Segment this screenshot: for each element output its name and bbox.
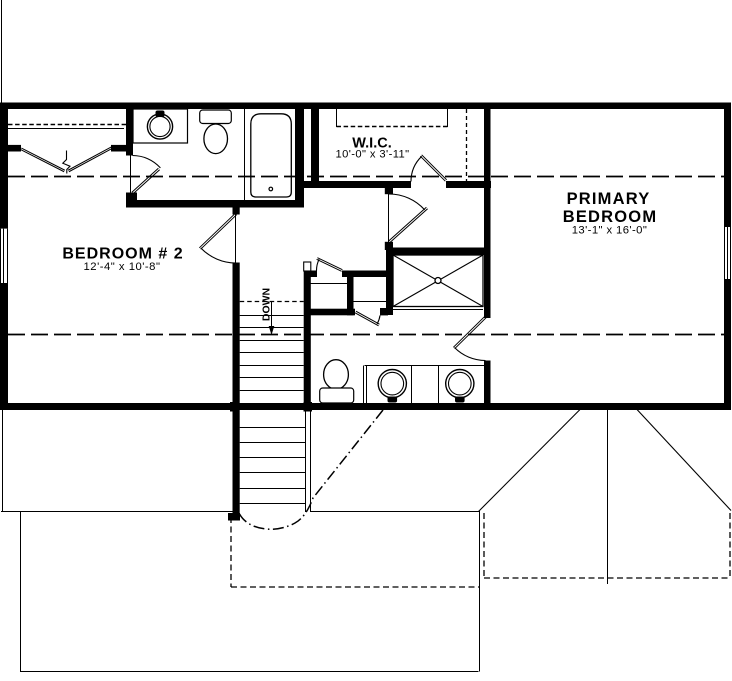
svg-text:PRIMARY: PRIMARY xyxy=(567,190,651,208)
svg-text:12'-4" x 10'-8": 12'-4" x 10'-8" xyxy=(84,261,161,273)
svg-text:13'-1" x 16'-0": 13'-1" x 16'-0" xyxy=(572,225,647,237)
svg-text:BEDROOM: BEDROOM xyxy=(563,208,658,226)
svg-text:10'-0" x 3'-11": 10'-0" x 3'-11" xyxy=(336,148,410,160)
svg-text:DOWN: DOWN xyxy=(260,288,272,321)
